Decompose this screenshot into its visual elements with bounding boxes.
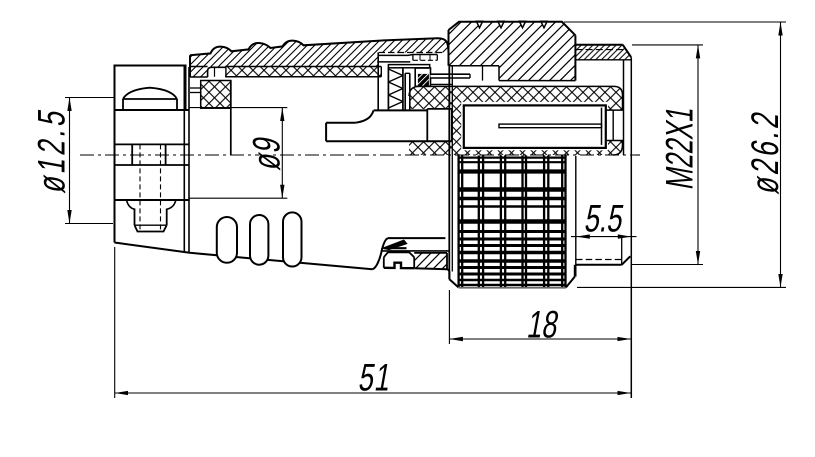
svg-text:5.5: 5.5 bbox=[582, 198, 627, 240]
svg-text:ø26.2: ø26.2 bbox=[745, 106, 787, 197]
svg-text:ø12.5: ø12.5 bbox=[31, 103, 73, 195]
svg-text:M22X1: M22X1 bbox=[659, 103, 702, 192]
